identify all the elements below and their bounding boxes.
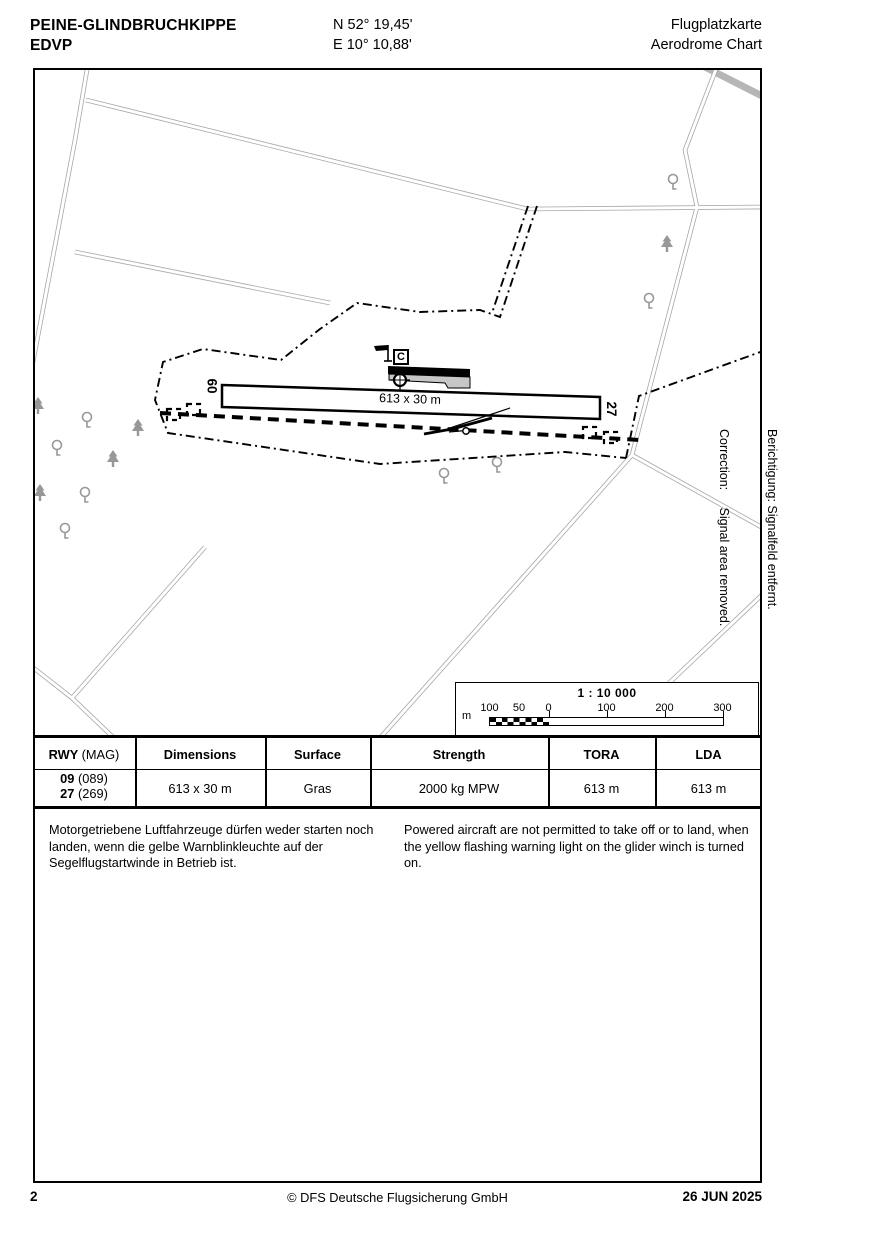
scale-bar-box: 1 : 10 000 100 50 0 100 200 300 m <box>455 682 759 735</box>
mag-label: (MAG) <box>82 747 120 762</box>
deciduous-tree-icons <box>53 175 678 539</box>
rwy-row-1: 09 (089) <box>33 771 135 786</box>
cell-strength: 2000 kg MPW <box>370 779 548 799</box>
col-header-lda: LDA <box>655 745 762 765</box>
effective-date: 26 JUN 2025 <box>462 1189 762 1204</box>
correction-note-en: Correction: Signal area removed. <box>716 429 732 626</box>
aerodrome-name: PEINE-GLINDBRUCHKIPPE <box>30 17 237 35</box>
cell-tora: 613 m <box>548 779 655 799</box>
scale-bar <box>489 717 724 726</box>
correction-note-de: Berichtigung: Signalfeld entfernt. <box>764 429 780 626</box>
col-header-strength: Strength <box>370 745 548 765</box>
latitude: N 52° 19,45' <box>333 17 413 33</box>
longitude: E 10° 10,88' <box>333 37 412 53</box>
scale-ratio: 1 : 10 000 <box>456 686 758 700</box>
aerodrome-map: 613 x 30 m 09 27 C 1 : 10 000 100 50 0 1… <box>35 70 760 735</box>
col-header-rwy: RWY (MAG) <box>33 745 135 765</box>
cell-lda: 613 m <box>655 779 762 799</box>
rwy-label: RWY <box>49 747 78 762</box>
chart-title-en: Aerodrome Chart <box>462 37 762 53</box>
cell-rwy: 09 (089) 27 (269) <box>33 771 135 801</box>
col-header-tora: TORA <box>548 745 655 765</box>
rwy-designator-27: 27 <box>602 395 620 423</box>
table-bottom-rule <box>33 806 762 809</box>
reporting-point-c: C <box>393 349 409 365</box>
scale-unit: m <box>462 710 471 722</box>
col-header-surface: Surface <box>265 745 370 765</box>
scale-tick-label: 100 <box>477 702 503 714</box>
note-german: Motorgetriebene Luftfahrzeuge dürfen wed… <box>49 822 398 872</box>
icao-code: EDVP <box>30 37 72 55</box>
table-header-rule <box>33 769 762 770</box>
rwy-row-2: 27 (269) <box>33 786 135 801</box>
map-bottom-border <box>33 735 762 738</box>
cell-dimensions: 613 x 30 m <box>135 779 265 799</box>
rwy-designator-09: 09 <box>204 372 222 400</box>
margin-correction-note: Berichtigung: Signalfeld entfernt. Corre… <box>684 429 812 626</box>
cell-surface: Gras <box>265 779 370 799</box>
scale-tick-label: 50 <box>506 702 532 714</box>
windsock-icon <box>374 345 392 361</box>
chart-title-de: Flugplatzkarte <box>462 17 762 33</box>
scale-bar-checker <box>490 722 549 726</box>
conifer-tree-icons <box>35 235 673 501</box>
note-english: Powered aircraft are not permitted to ta… <box>404 822 760 872</box>
col-header-dimensions: Dimensions <box>135 745 265 765</box>
aerodrome-chart-page: PEINE-GLINDBRUCHKIPPE EDVP N 52° 19,45' … <box>0 0 875 1240</box>
